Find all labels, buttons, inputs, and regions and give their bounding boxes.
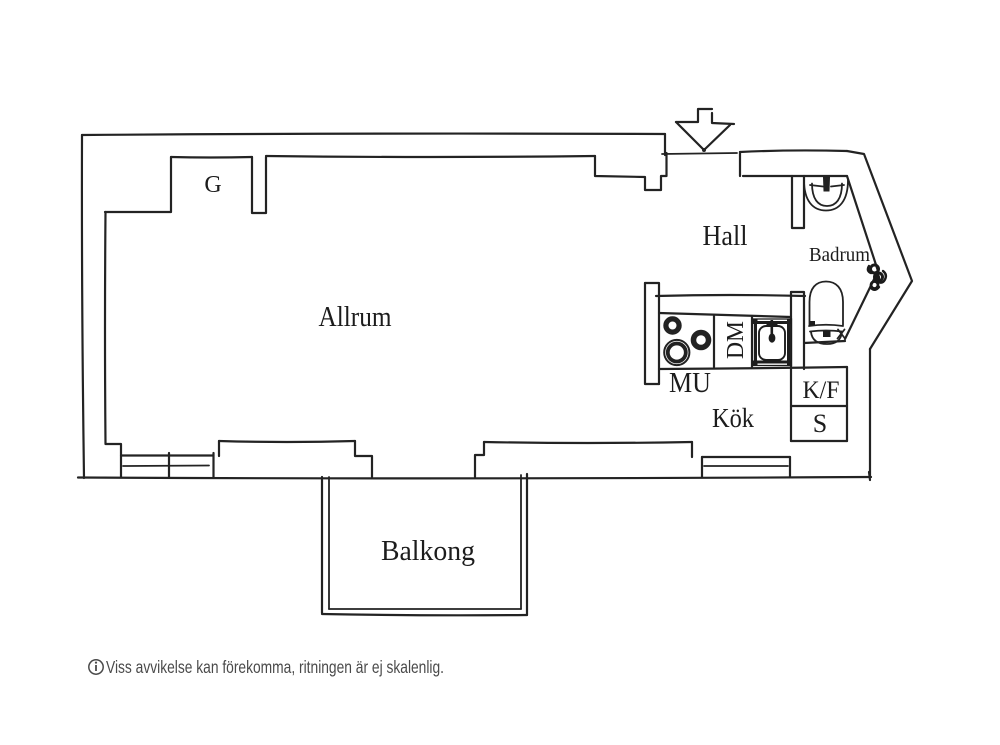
svg-text:Viss avvikelse kan förekomma,: Viss avvikelse kan förekomma, ritningen … (106, 657, 444, 677)
svg-text:Balkong: Balkong (381, 535, 475, 567)
svg-text:Allrum: Allrum (319, 301, 392, 333)
svg-text:Badrum: Badrum (809, 244, 870, 266)
svg-text:G: G (204, 172, 221, 198)
svg-text:Hall: Hall (703, 220, 748, 252)
svg-text:MU: MU (669, 368, 711, 399)
svg-text:S: S (813, 409, 827, 438)
svg-text:DM: DM (723, 321, 749, 359)
svg-text:Kök: Kök (712, 403, 754, 433)
svg-text:K/F: K/F (803, 377, 840, 404)
